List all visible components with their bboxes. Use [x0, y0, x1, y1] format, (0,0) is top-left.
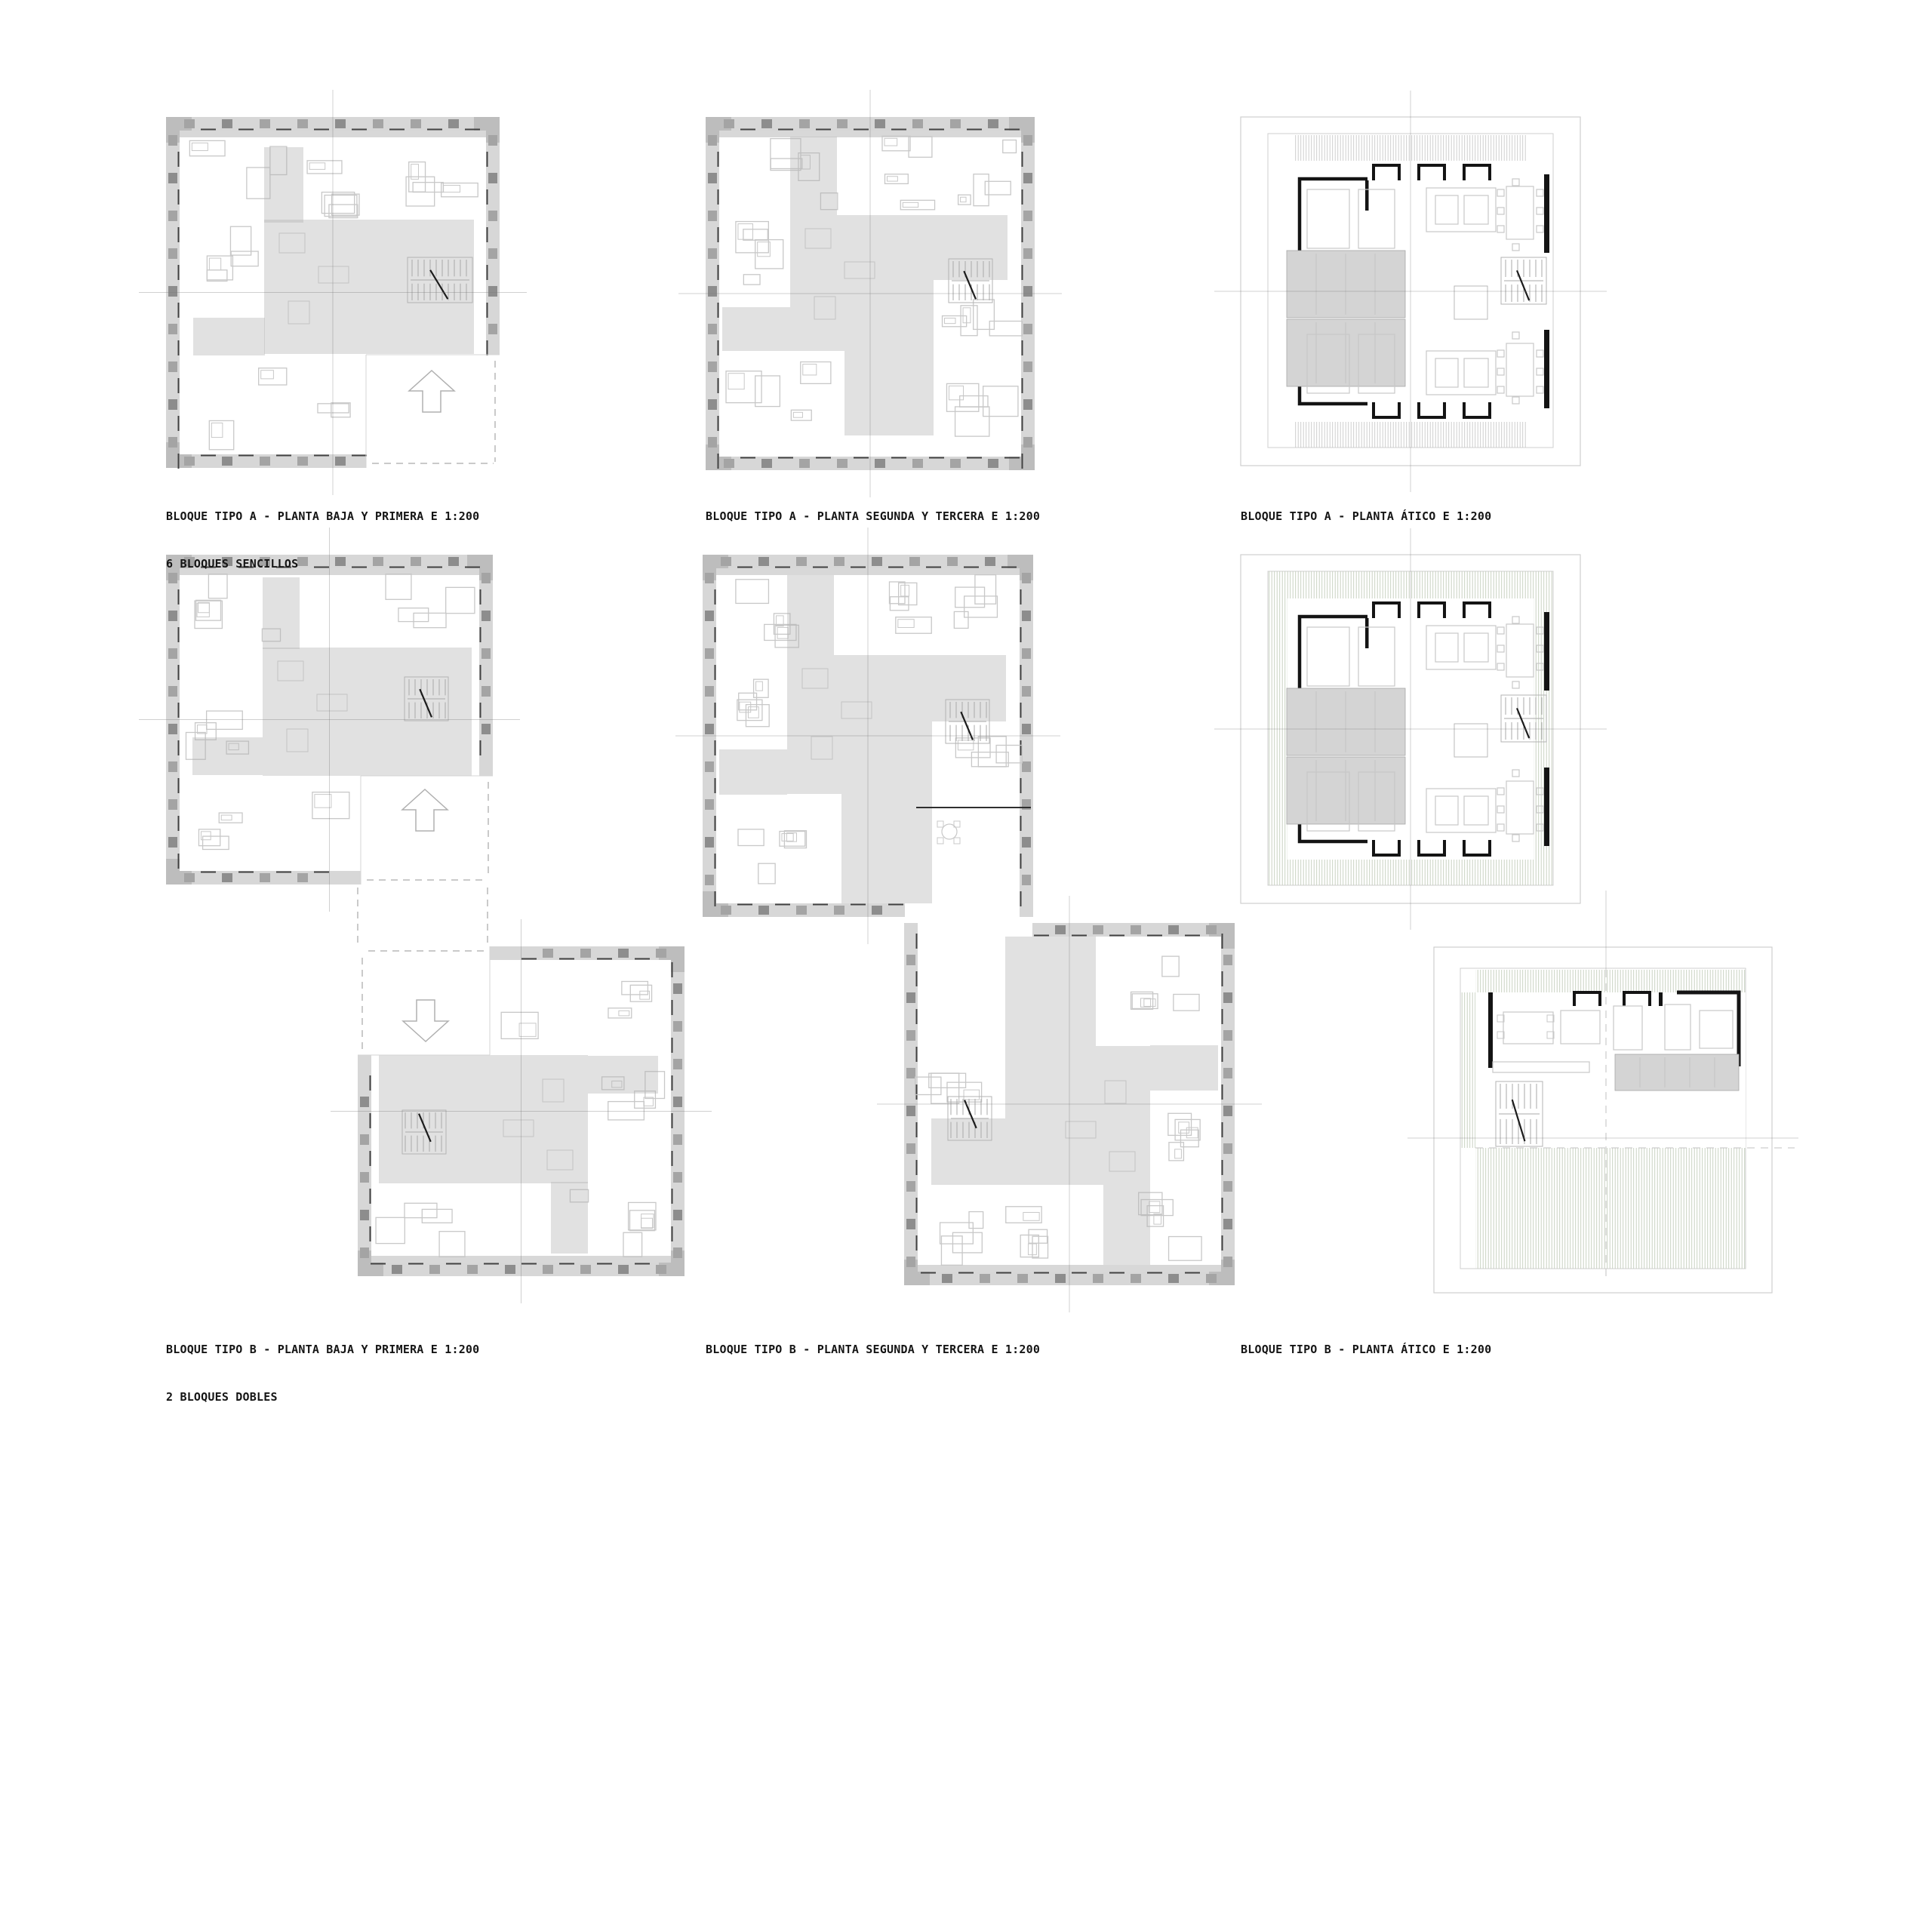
drawing-sheet: BLOQUE TIPO A - PLANTA BAJA Y PRIMERA E … [0, 0, 1932, 1932]
label-line-1: BLOQUE TIPO B - PLANTA ÁTICO E 1:200 [1241, 1342, 1491, 1358]
label-line-1: BLOQUE TIPO A - PLANTA ÁTICO E 1:200 [1241, 509, 1491, 525]
label-bloque-b-segunda: BLOQUE TIPO B - PLANTA SEGUNDA Y TERCERA… [706, 1310, 1040, 1389]
plan-b-planta-segunda-bloque-2 [877, 896, 1262, 1312]
label-line-2: 2 BLOQUES DOBLES [166, 1389, 479, 1405]
label-line-1: BLOQUE TIPO A - PLANTA SEGUNDA Y TERCERA… [706, 509, 1040, 525]
plan-b-planta-baja-bloque-2 [331, 919, 712, 1303]
label-line-1: BLOQUE TIPO A - PLANTA BAJA Y PRIMERA E … [166, 509, 479, 525]
plan-a-planta-atico [1214, 91, 1607, 492]
plan-b-planta-segunda-bloque-1 [675, 528, 1060, 944]
label-bloque-a-segunda: BLOQUE TIPO A - PLANTA SEGUNDA Y TERCERA… [706, 477, 1040, 556]
plan-a-planta-segunda-tercera [678, 90, 1062, 497]
plan-b-planta-atico-bloque-2 [1407, 891, 1798, 1293]
label-bloque-b-baja: BLOQUE TIPO B - PLANTA BAJA Y PRIMERA E … [166, 1310, 479, 1437]
label-line-1: BLOQUE TIPO B - PLANTA BAJA Y PRIMERA E … [166, 1342, 479, 1358]
label-bloque-b-atico: BLOQUE TIPO B - PLANTA ÁTICO E 1:200 [1241, 1310, 1491, 1389]
label-line-2: 6 BLOQUES SENCILLOS [166, 556, 479, 572]
plan-b-planta-atico-bloque-1 [1214, 528, 1607, 930]
plan-a-planta-baja-primera [139, 90, 527, 495]
floor-plans-canvas [0, 0, 1932, 1932]
label-bloque-a-atico: BLOQUE TIPO A - PLANTA ÁTICO E 1:200 [1241, 477, 1491, 556]
label-bloque-a-baja: BLOQUE TIPO A - PLANTA BAJA Y PRIMERA E … [166, 477, 479, 604]
label-line-1: BLOQUE TIPO B - PLANTA SEGUNDA Y TERCERA… [706, 1342, 1040, 1358]
